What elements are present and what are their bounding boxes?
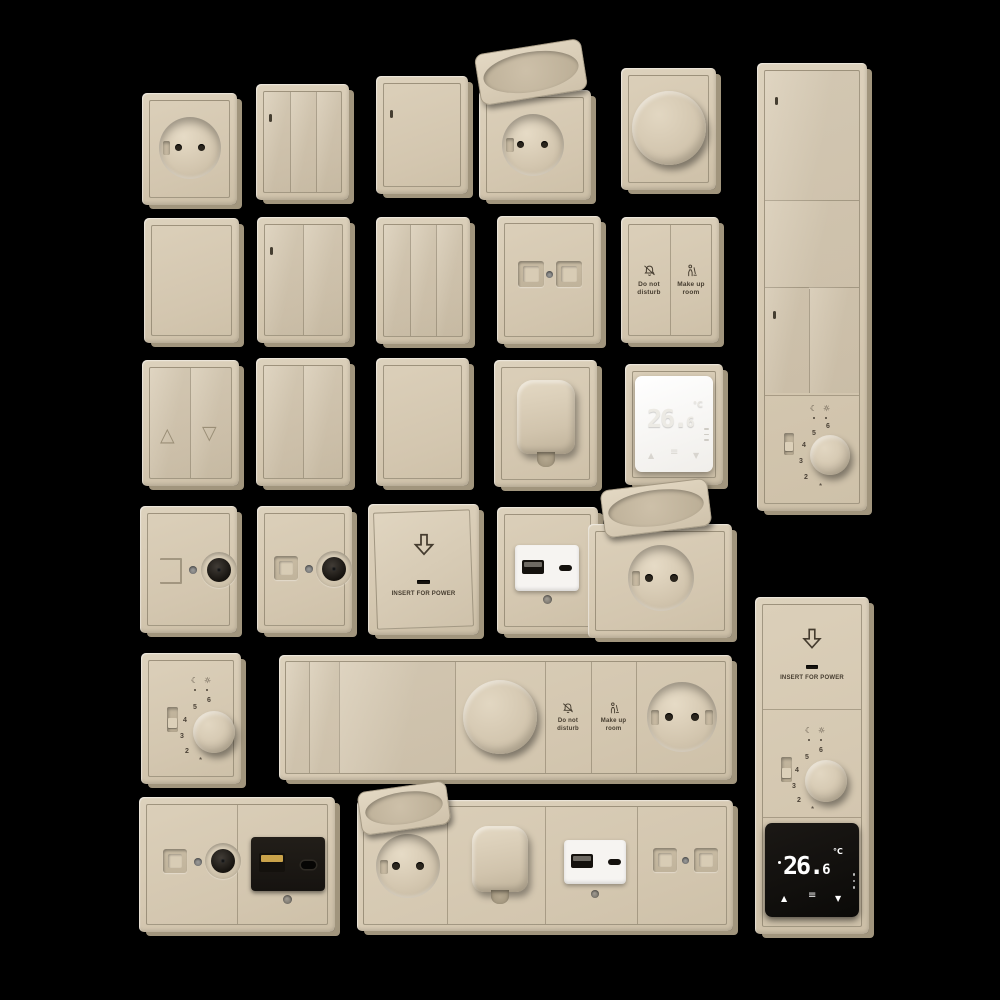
plate-socket-lidded-wide [588, 524, 732, 638]
usb-a-tongue [573, 856, 591, 861]
dial-number-4: 4 [183, 717, 187, 724]
center-dot [546, 271, 553, 278]
plate-switch-3gang [256, 84, 349, 200]
coax-connector [201, 552, 237, 588]
thermostat-display-black: 26.6 °C ▲ ≡ ▼ [765, 823, 859, 917]
slider-handle [782, 768, 791, 779]
thermostat-display-white: 26.6 °C ▲ ≡ ▼ [635, 376, 713, 472]
do-not-disturb-rocker[interactable]: Do notdisturb [545, 662, 591, 773]
rocker-divider [410, 225, 411, 336]
section-divider [765, 395, 859, 396]
slider-handle [785, 442, 793, 451]
jack-opening [699, 853, 713, 867]
divider [636, 662, 637, 773]
coax-connector [316, 551, 352, 587]
plate-blind-switch: △ ▽ [142, 360, 239, 486]
plate-usb-charger-white [497, 507, 598, 634]
center-dot [682, 857, 689, 864]
panel-tall-multifunction: ☾ ☼ 6 5 4 3 2 * [757, 63, 867, 511]
temp-up-button[interactable]: ▲ [648, 452, 654, 460]
divider [637, 807, 638, 924]
do-not-disturb-label: Do notdisturb [557, 718, 579, 734]
plate-thermostat-white: 26.6 °C ▲ ≡ ▼ [625, 364, 723, 485]
coax-connector [205, 843, 241, 879]
socket-hole-right [541, 141, 548, 148]
socket-hole-right [691, 713, 699, 721]
led-indicator [773, 311, 776, 319]
socket-hole-left [665, 713, 673, 721]
blind-down-icon: ▽ [202, 424, 217, 443]
data-jack [274, 556, 298, 580]
plate-data-dual [497, 216, 601, 344]
usb-a-tongue [524, 562, 542, 567]
led-indicator [390, 110, 393, 118]
screw [283, 895, 292, 904]
dial-number-2: 2 [797, 797, 801, 804]
coax-pin [332, 567, 336, 571]
rocker-narrow-1[interactable] [286, 662, 309, 773]
cable-outlet-hood [472, 826, 528, 892]
plate-socket-lidded [479, 90, 591, 200]
cable-exit-notch [537, 452, 555, 467]
panel-tall-hotel: INSERT FOR POWER ☾ ☼ 6 5 4 3 2 * 26.6 °C… [755, 597, 869, 934]
dial-number-3: 3 [180, 733, 184, 740]
screw [591, 890, 599, 898]
plate-double-media-usb [139, 797, 335, 932]
schuko-socket [376, 834, 440, 898]
make-up-room-rocker[interactable]: Make uproom [591, 662, 636, 773]
jack-opening [561, 266, 577, 282]
plate-round-socket [142, 93, 237, 205]
cable-outlet-hood [517, 380, 575, 454]
dial-knob[interactable] [193, 711, 235, 753]
socket-clip [380, 860, 388, 874]
dial-number-3: 3 [799, 458, 803, 465]
led-indicator [775, 97, 778, 105]
rocker[interactable] [151, 225, 232, 336]
data-jack-left [518, 261, 544, 287]
plate-thermostat-dial: ☾ ☼ 6 5 4 3 2 * [141, 653, 241, 784]
rocker-3[interactable] [436, 225, 462, 336]
socket-clip [632, 571, 640, 586]
dial-number-6: 6 [826, 423, 830, 430]
data-jack [163, 849, 187, 873]
plate-switch-3gang [376, 217, 470, 344]
temperature-unit: °C [833, 847, 843, 856]
socket-hole-left [517, 141, 524, 148]
plate-blank-rocker [144, 218, 239, 343]
thermostat-dial-module: ☾ ☼ 6 5 4 3 2 * [764, 397, 860, 504]
rocker-left[interactable] [765, 287, 809, 393]
rocker-large-2[interactable] [765, 200, 859, 287]
rocker-3[interactable] [316, 92, 341, 192]
usb-a-contacts [261, 855, 283, 862]
do-not-disturb-icon [561, 701, 575, 715]
menu-button[interactable]: ≡ [808, 891, 816, 901]
dial-marker-dots [813, 417, 815, 419]
plate-switch-1gang-led [376, 76, 468, 194]
blind-up-icon: △ [160, 426, 175, 445]
rocker-large[interactable] [765, 71, 859, 200]
frost-mark: * [819, 483, 822, 491]
divider [545, 807, 546, 924]
usb-module-black [251, 837, 325, 891]
dial-number-5: 5 [812, 430, 816, 437]
temperature-unit: °C [693, 400, 703, 409]
product-render-canvas: ☾ ☼ 6 5 4 3 2 * [0, 0, 1000, 1000]
dimmer-knob[interactable] [632, 91, 706, 165]
led-indicator [270, 247, 273, 255]
rocker-2[interactable] [290, 92, 316, 192]
jack-opening [168, 854, 182, 868]
plate-switch-2gang-led [257, 217, 350, 343]
rocker-narrow-2[interactable] [309, 662, 339, 773]
dial-slider[interactable] [784, 433, 794, 455]
side-buttons[interactable] [704, 428, 709, 441]
usb-c-port [608, 859, 621, 865]
rocker-left[interactable] [264, 366, 303, 478]
dial-number-4: 4 [795, 767, 799, 774]
plate-keycard-holder: INSERT FOR POWER [368, 504, 479, 635]
rocker-wide[interactable] [339, 662, 455, 773]
divider [455, 662, 456, 773]
dial-number-2: 2 [185, 748, 189, 755]
dial-number-5: 5 [193, 704, 197, 711]
insert-for-power-label: INSERT FOR POWER [368, 591, 479, 599]
moon-icon: ☾ [191, 677, 198, 685]
plate-cable-outlet [494, 360, 597, 487]
make-up-room-label: Make uproom [677, 281, 704, 298]
socket-clip [506, 138, 514, 152]
menu-button[interactable]: ≡ [670, 448, 678, 458]
dial-knob[interactable] [805, 760, 847, 802]
jack-opening [279, 561, 293, 575]
socket-hole-left [645, 574, 653, 582]
slider-handle [168, 718, 177, 729]
socket-hole-right [416, 862, 424, 870]
rocker-left[interactable] [265, 225, 303, 335]
insert-card-arrow-icon [798, 625, 826, 655]
temperature-reading: 26.6 [783, 853, 831, 878]
jack-opening [523, 266, 539, 282]
side-buttons[interactable] [853, 873, 856, 889]
rocker-2[interactable] [410, 225, 436, 336]
moon-icon: ☾ [810, 405, 817, 413]
rocker-divider [436, 225, 437, 336]
insert-for-power-label: INSERT FOR POWER [755, 675, 869, 683]
socket-clip [163, 141, 170, 155]
lid-underside [480, 45, 581, 100]
dial-number-6: 6 [819, 747, 823, 754]
coax-barrel [322, 557, 346, 581]
data-jack-right [694, 848, 718, 872]
rocker-1[interactable] [264, 92, 290, 192]
do-not-disturb-icon [642, 263, 657, 278]
led-indicator [269, 114, 272, 122]
dial-number-3: 3 [792, 783, 796, 790]
rocker-divider [303, 366, 304, 478]
rocker-divider [190, 368, 191, 478]
temp-down-button[interactable]: ▼ [835, 895, 841, 903]
cable-exit-notch [491, 890, 509, 904]
rocker-divider [809, 289, 810, 393]
plate-switch-2gang [256, 358, 350, 486]
plate-dimmer [621, 68, 716, 190]
coax-pin [221, 859, 225, 863]
schuko-socket [502, 114, 564, 176]
data-jack-right [556, 261, 582, 287]
schuko-socket [628, 545, 694, 611]
divider [309, 662, 310, 773]
dial-number-6: 6 [207, 697, 211, 704]
rocker-right[interactable] [303, 366, 342, 478]
dial-knob[interactable] [810, 435, 850, 475]
dial-slider[interactable] [167, 707, 178, 732]
data-jack-bracket [160, 558, 182, 584]
center-dot [305, 565, 313, 573]
temp-up-button[interactable]: ▲ [781, 895, 787, 903]
dial-number-5: 5 [805, 754, 809, 761]
usb-a-port [259, 853, 285, 872]
coax-barrel [207, 558, 231, 582]
usb-c-port [301, 861, 316, 869]
dial-marker-dots [808, 739, 810, 741]
dial-marker-dots [194, 689, 196, 691]
divider [447, 807, 448, 924]
coax-barrel [211, 849, 235, 873]
center-dot [189, 566, 197, 574]
blind-up-rocker[interactable] [150, 368, 190, 478]
plate-switch-1gang [376, 358, 469, 486]
rocker-right[interactable] [303, 225, 342, 335]
socket-hole-left [175, 144, 182, 151]
card-slot[interactable] [806, 665, 818, 669]
plate-dnd-mur-switch: Do notdisturb Make uproom [621, 217, 719, 343]
do-not-disturb-rocker[interactable]: Do notdisturb [628, 224, 670, 336]
make-up-room-rocker[interactable]: Make uproom [670, 224, 712, 336]
data-jack-left [653, 848, 677, 872]
make-up-room-label: Make uproom [601, 718, 626, 734]
round-socket [159, 117, 221, 179]
rocker-right[interactable] [809, 287, 859, 393]
rocker-1[interactable] [384, 225, 410, 336]
usb-a-port [522, 560, 544, 574]
strip-combo-1: Do notdisturb Make uproom [279, 655, 732, 780]
socket-hole-right [670, 574, 678, 582]
lid-underside [606, 484, 706, 531]
sun-icon: ☼ [823, 405, 830, 413]
make-up-room-icon [684, 263, 699, 278]
coax-pin [217, 568, 221, 572]
card-slot[interactable] [417, 580, 430, 584]
sun-icon: ☼ [818, 727, 825, 735]
rocker-divider [316, 92, 317, 192]
section-divider [763, 817, 861, 818]
socket-clip [705, 710, 713, 725]
usb-a-port [571, 854, 593, 868]
usb-module [515, 545, 579, 591]
heat-indicator-dot [778, 861, 781, 864]
insert-card-arrow-icon [409, 530, 439, 562]
dial-slider[interactable] [781, 757, 792, 782]
jack-opening [658, 853, 672, 867]
make-up-room-icon [607, 701, 621, 715]
usb-c-port [559, 565, 572, 571]
schuko-socket [647, 682, 717, 752]
card-front [373, 509, 474, 629]
dial-number-2: 2 [804, 474, 808, 481]
dial-number-4: 4 [802, 442, 806, 449]
screw [543, 595, 552, 604]
center-dot [194, 858, 202, 866]
sun-icon: ☼ [204, 677, 211, 685]
plate-media-a [140, 506, 237, 633]
dimmer-knob[interactable] [463, 680, 537, 754]
rocker[interactable] [383, 365, 462, 479]
do-not-disturb-label: Do notdisturb [637, 281, 660, 298]
socket-clip [651, 710, 659, 725]
socket-hole-left [392, 862, 400, 870]
moon-icon: ☾ [805, 727, 812, 735]
frost-mark: * [811, 806, 814, 814]
temperature-reading: 26.6 [647, 406, 695, 431]
socket-hole-right [198, 144, 205, 151]
rocker[interactable] [383, 83, 461, 187]
plate-media-b [257, 506, 352, 633]
rocker-divider [303, 225, 304, 335]
usb-module [564, 840, 626, 884]
section-divider [763, 709, 861, 710]
rocker-divider [290, 92, 291, 192]
lid-underside [363, 787, 445, 830]
temp-down-button[interactable]: ▼ [693, 452, 699, 460]
frost-mark: * [199, 757, 202, 765]
